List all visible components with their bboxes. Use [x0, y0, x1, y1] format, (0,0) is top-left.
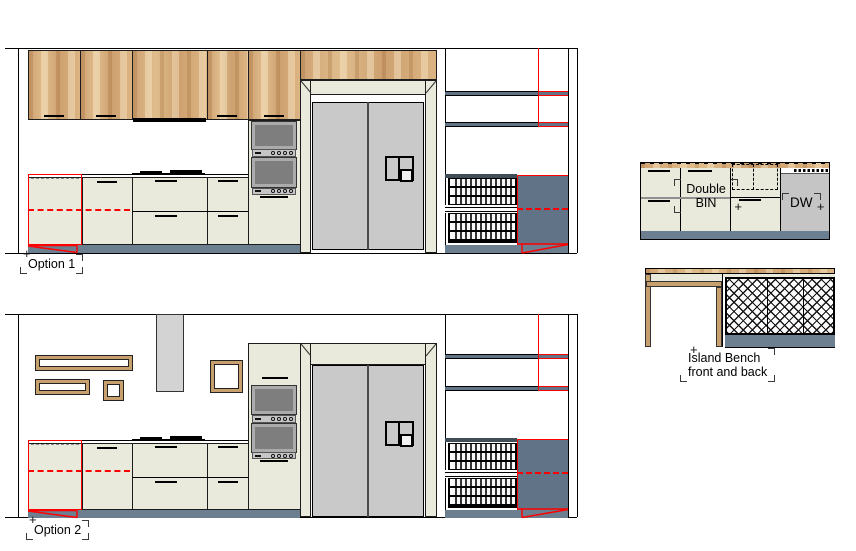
island-caption-line1: Island Bench: [688, 351, 767, 365]
woven-back-panel: [725, 277, 835, 335]
section-divider: [722, 274, 723, 347]
grip-icon: [768, 348, 775, 355]
island-caption-line2: front and back: [688, 365, 767, 379]
panel-seam: [767, 279, 768, 333]
bench-opening: [651, 287, 716, 347]
panel-seam: [803, 279, 804, 333]
floor-line: [725, 347, 835, 348]
island-bench-front-back: Island Bench front and back +: [0, 0, 856, 551]
island-caption[interactable]: Island Bench front and back +: [688, 351, 767, 379]
grip-icon: [768, 375, 775, 382]
grip-icon: [680, 375, 687, 382]
crosshair-icon: +: [690, 343, 698, 357]
kitchen-elevation-drawing: Option 1 +: [0, 0, 856, 551]
kickboard: [725, 335, 835, 347]
